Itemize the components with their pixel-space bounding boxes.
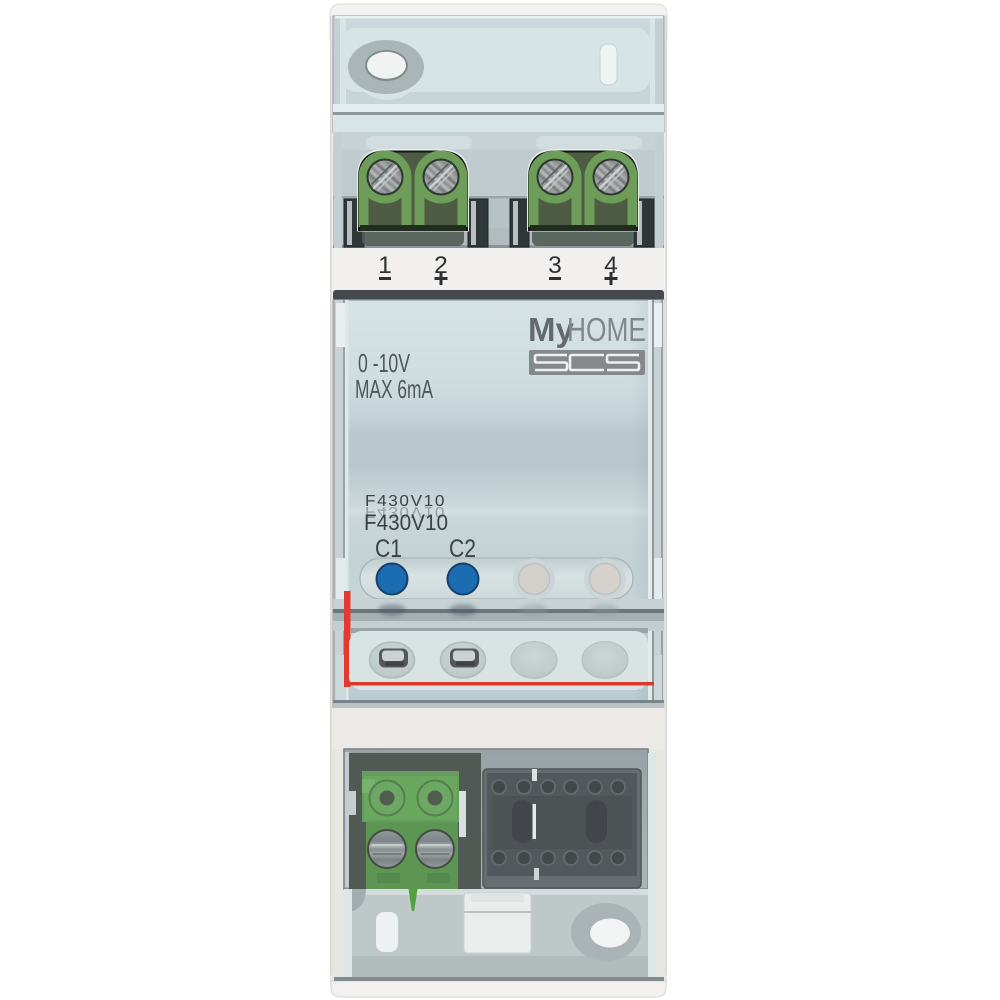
svg-text:MAX 6mA: MAX 6mA [355,374,433,404]
svg-text:3: 3 [548,252,562,279]
svg-text:1: 1 [378,252,392,279]
svg-text:HOME: HOME [567,311,646,348]
svg-text:F430V10: F430V10 [364,510,448,535]
